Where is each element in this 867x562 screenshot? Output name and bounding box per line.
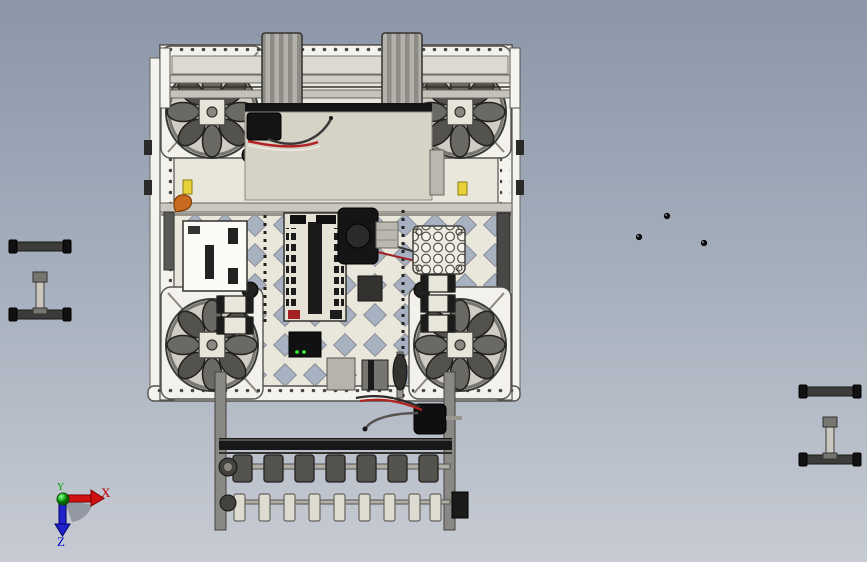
upper-roller-wheels [233, 455, 438, 482]
sprocket [393, 354, 407, 390]
z-axis-label: Z [57, 534, 65, 549]
hex-pattern-plate[interactable] [413, 226, 465, 274]
robot-assembly[interactable] [144, 33, 525, 530]
left-channel [164, 212, 174, 270]
lower-roller-wheels [234, 494, 441, 521]
left-tab [144, 180, 152, 195]
y-axis-ball[interactable] [57, 493, 69, 505]
scene-canvas[interactable]: X Y Z [0, 0, 867, 562]
loose-fasteners[interactable] [636, 213, 706, 245]
intake-end-plate-right [510, 48, 520, 108]
lower-roller-hub [220, 495, 236, 511]
cad-viewport[interactable]: X Y Z [0, 0, 867, 562]
mid-cross-rail [160, 203, 512, 212]
gray-cylinder-motor [327, 358, 355, 390]
loose-shaft-assembly-left[interactable] [9, 240, 71, 321]
lower-roller-gearbox [452, 492, 468, 518]
intake-wire-gray [366, 413, 418, 428]
left-tab [144, 140, 152, 155]
radio-board[interactable] [289, 332, 321, 357]
yellow-spacer-right [458, 182, 467, 195]
power-distribution-panel[interactable] [284, 213, 346, 321]
cover-motor [247, 113, 281, 140]
orientation-triad[interactable]: X Y Z [55, 482, 111, 549]
y-axis-label: Y [57, 482, 64, 493]
battery-cover-plate[interactable] [245, 103, 444, 200]
controller-board[interactable] [183, 221, 247, 291]
terminal-block [362, 360, 388, 390]
yellow-spacer-left [183, 180, 192, 194]
intake-end-plate-left [160, 48, 170, 108]
left-bumper-rail [150, 58, 160, 392]
x-axis-label: X [101, 485, 111, 500]
right-tab [516, 140, 524, 155]
voltage-regulator[interactable] [358, 276, 382, 301]
loose-shaft-assembly-right[interactable] [799, 385, 861, 466]
right-tab [516, 180, 524, 195]
